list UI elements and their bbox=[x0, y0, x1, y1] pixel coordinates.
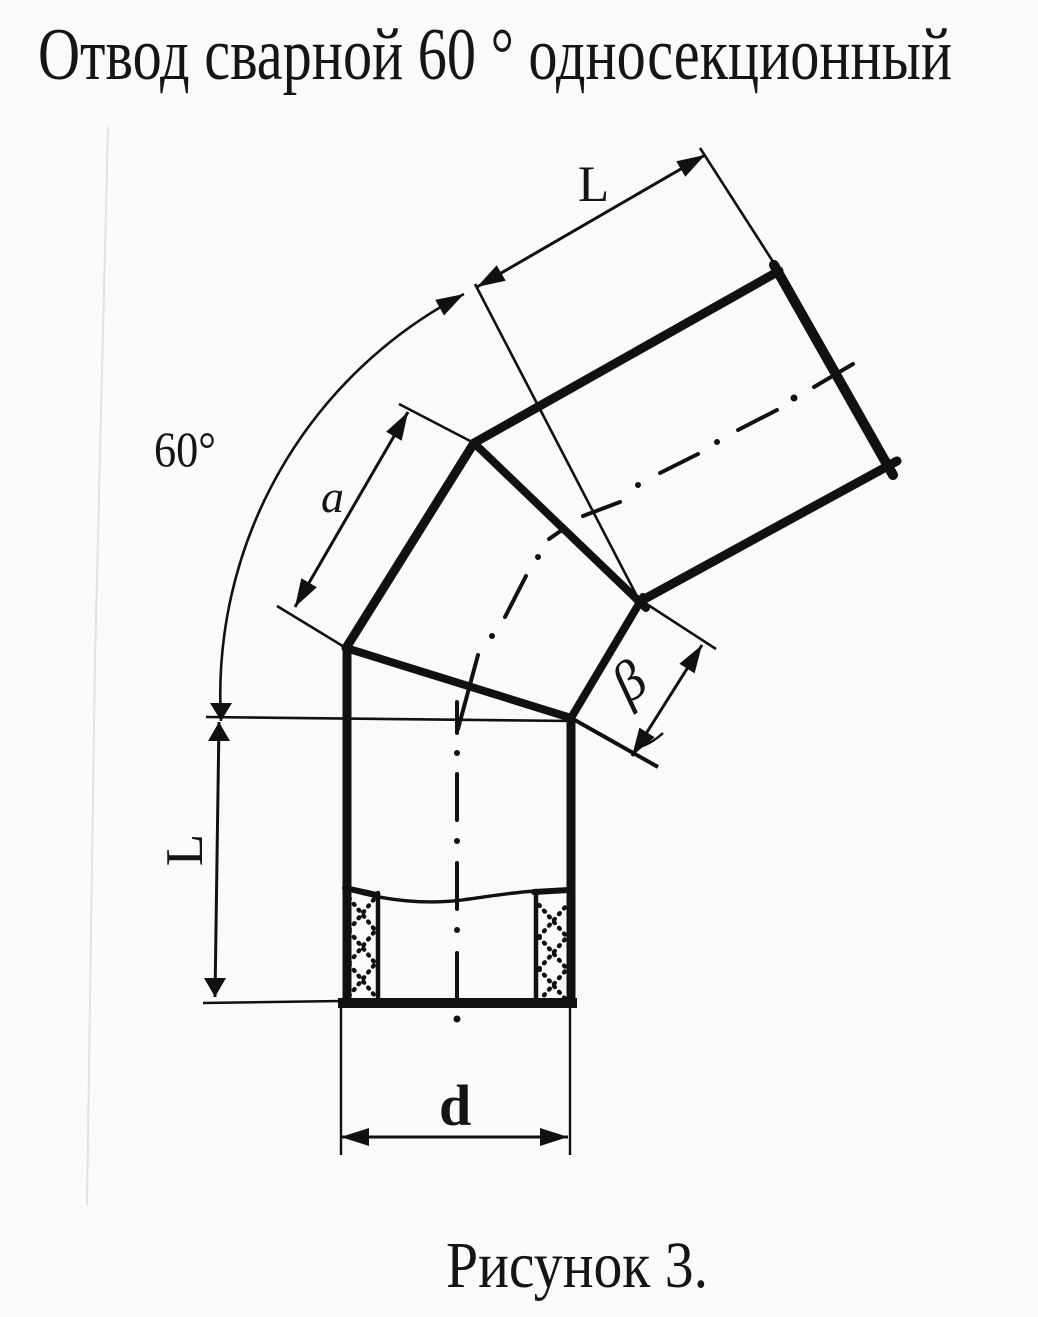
svg-text:d: d bbox=[439, 1073, 471, 1138]
svg-text:L: L bbox=[156, 834, 214, 866]
svg-text:Отвод сварной 60 ° односекцион: Отвод сварной 60 ° односекционный bbox=[38, 14, 952, 96]
svg-text:L: L bbox=[578, 157, 609, 213]
svg-text:60°: 60° bbox=[154, 421, 216, 477]
svg-text:Рисунок 3.: Рисунок 3. bbox=[446, 1229, 708, 1302]
svg-text:a: a bbox=[321, 471, 344, 522]
